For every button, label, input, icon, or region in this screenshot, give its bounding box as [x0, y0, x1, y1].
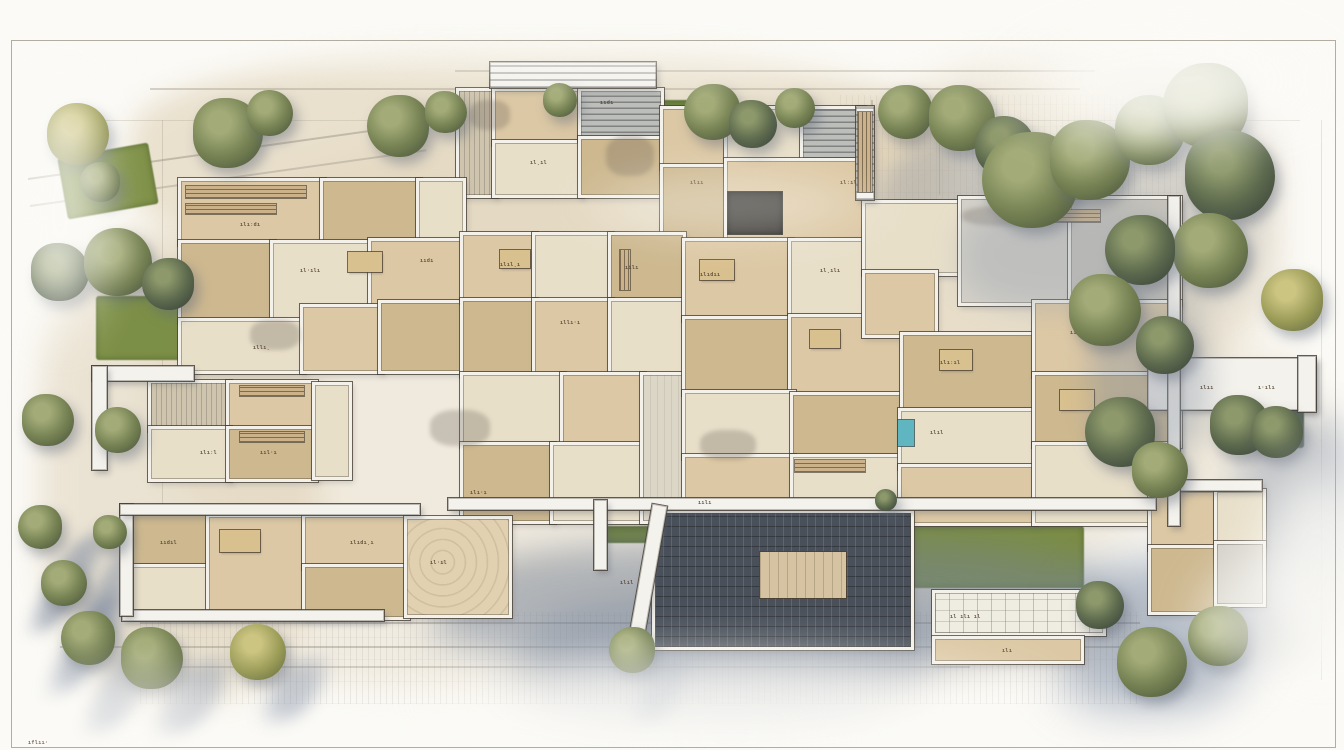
site-plan-canvas: ılıːdııl·ılıııdıılıl¸ııllı·ııı̇lıılıdııı… — [0, 0, 1344, 750]
drawing-frame-border — [11, 40, 1336, 748]
